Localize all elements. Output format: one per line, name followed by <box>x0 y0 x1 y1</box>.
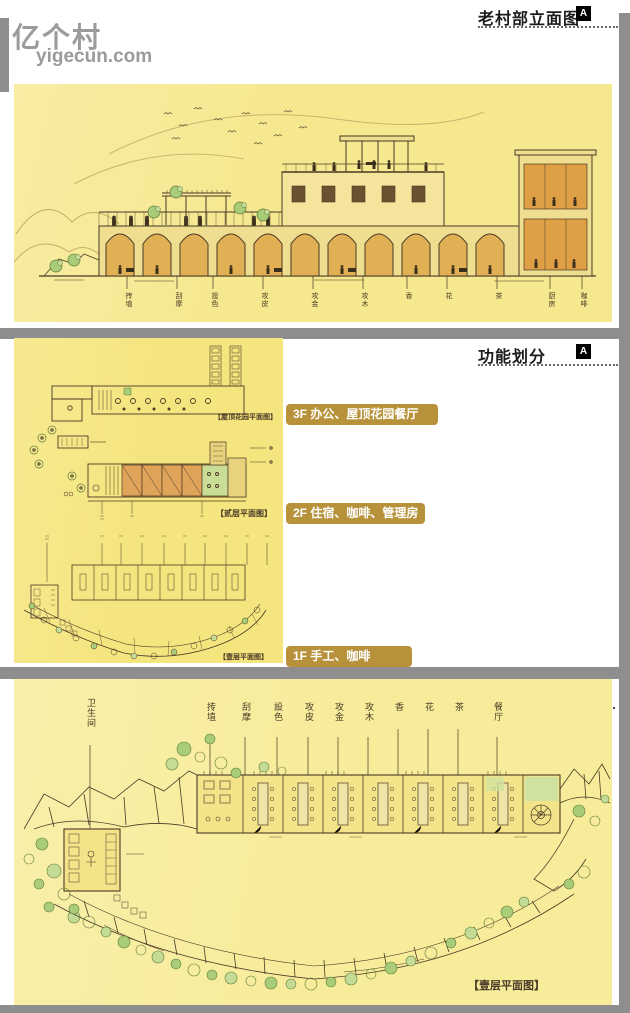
elevation-room-label: 花 <box>441 292 453 300</box>
elevation-panel <box>14 84 612 322</box>
functions-panel <box>14 338 283 663</box>
elevation-sketch <box>14 84 612 322</box>
plan-room-label: 花 <box>421 702 435 712</box>
terrace <box>99 212 282 226</box>
plan-room-label: 攻金 <box>331 702 345 722</box>
elevation-room-label: 攻皮 <box>257 292 269 308</box>
tree-icon <box>234 202 247 214</box>
tree-icon <box>50 260 63 272</box>
plan-room-label: 香 <box>391 702 405 712</box>
tree-icon <box>257 209 270 221</box>
plan1f-panel <box>14 679 612 1005</box>
floor-label-3f: 3F 办公、屋顶花园餐厅 <box>286 404 438 425</box>
crescent-trees <box>69 897 529 990</box>
plan-room-label: 設色 <box>270 702 284 722</box>
roof-pavilion <box>340 136 414 172</box>
tree-icon <box>148 206 161 218</box>
elevation-room-label: 香 <box>401 292 413 300</box>
plan-room-label: 攻皮 <box>301 702 315 722</box>
rocks-left <box>24 771 197 829</box>
caption-roof-plan: 【屋顶花园平面图】 <box>214 412 277 422</box>
function-plans-sketch <box>14 338 283 663</box>
crescent-terraces <box>54 886 574 979</box>
plan-2f <box>30 426 272 519</box>
plan-1f-mini <box>24 536 269 659</box>
divider-2 <box>0 667 630 679</box>
elevation-room-label: 刮摩 <box>171 292 183 308</box>
watermark-domain: yigecun.com <box>36 46 152 68</box>
plan-room-label: 刮摩 <box>238 702 252 722</box>
scanned-design-page: 亿个村 yigecun.com 老村部立面图 A 功能划分 A 老村部1F平面图… <box>0 0 630 1013</box>
floor-label-1f: 1F 手工、咖啡 <box>286 646 412 667</box>
section-badge-functions: A <box>576 344 591 359</box>
caption-plan1f: 【壹层平面图】 <box>468 977 545 993</box>
elevation-room-label: 攻金 <box>307 292 319 308</box>
plan-room-label: 攻木 <box>361 702 375 722</box>
plan-room-label: 卫生间 <box>83 698 97 728</box>
elevation-room-label: 攻木 <box>357 292 369 308</box>
tree-icon <box>170 186 183 198</box>
right-edge-bar <box>619 13 630 1013</box>
elevation-room-label: 茶 <box>491 292 503 300</box>
trees-right <box>564 795 609 889</box>
caption-1f-mini-plan: 【壹层平面图】 <box>219 652 268 662</box>
building-arcade <box>99 226 519 276</box>
building-upper-block <box>282 162 444 226</box>
elevation-room-label: 咖啡 <box>576 292 588 308</box>
plan-room-label: 抟埴 <box>203 702 217 722</box>
elevation-room-label: 厨房 <box>544 292 556 308</box>
plan-building <box>197 771 560 837</box>
elevation-room-label: 設色 <box>207 292 219 308</box>
caption-2f-plan: 【贰层平面图】 <box>216 508 272 519</box>
dotted-rule-2 <box>478 364 618 366</box>
bottom-edge-bar <box>0 1005 630 1013</box>
dotted-rule-1 <box>478 26 618 28</box>
tree-icon <box>68 254 81 266</box>
section-badge-elevation: A <box>576 6 591 21</box>
floor-label-2f: 2F 住宿、咖啡、管理房 <box>286 503 425 524</box>
plan1f-sketch <box>14 679 612 1005</box>
plan-room-label: 餐厅 <box>490 702 504 722</box>
building-right-block <box>515 150 596 276</box>
plan-room-label: 茶 <box>451 702 465 712</box>
elevation-room-label: 抟埴 <box>121 292 133 308</box>
plan-3f <box>52 346 244 421</box>
label-leaders <box>127 276 582 289</box>
birds <box>164 108 307 144</box>
left-accent-bar <box>0 18 9 92</box>
